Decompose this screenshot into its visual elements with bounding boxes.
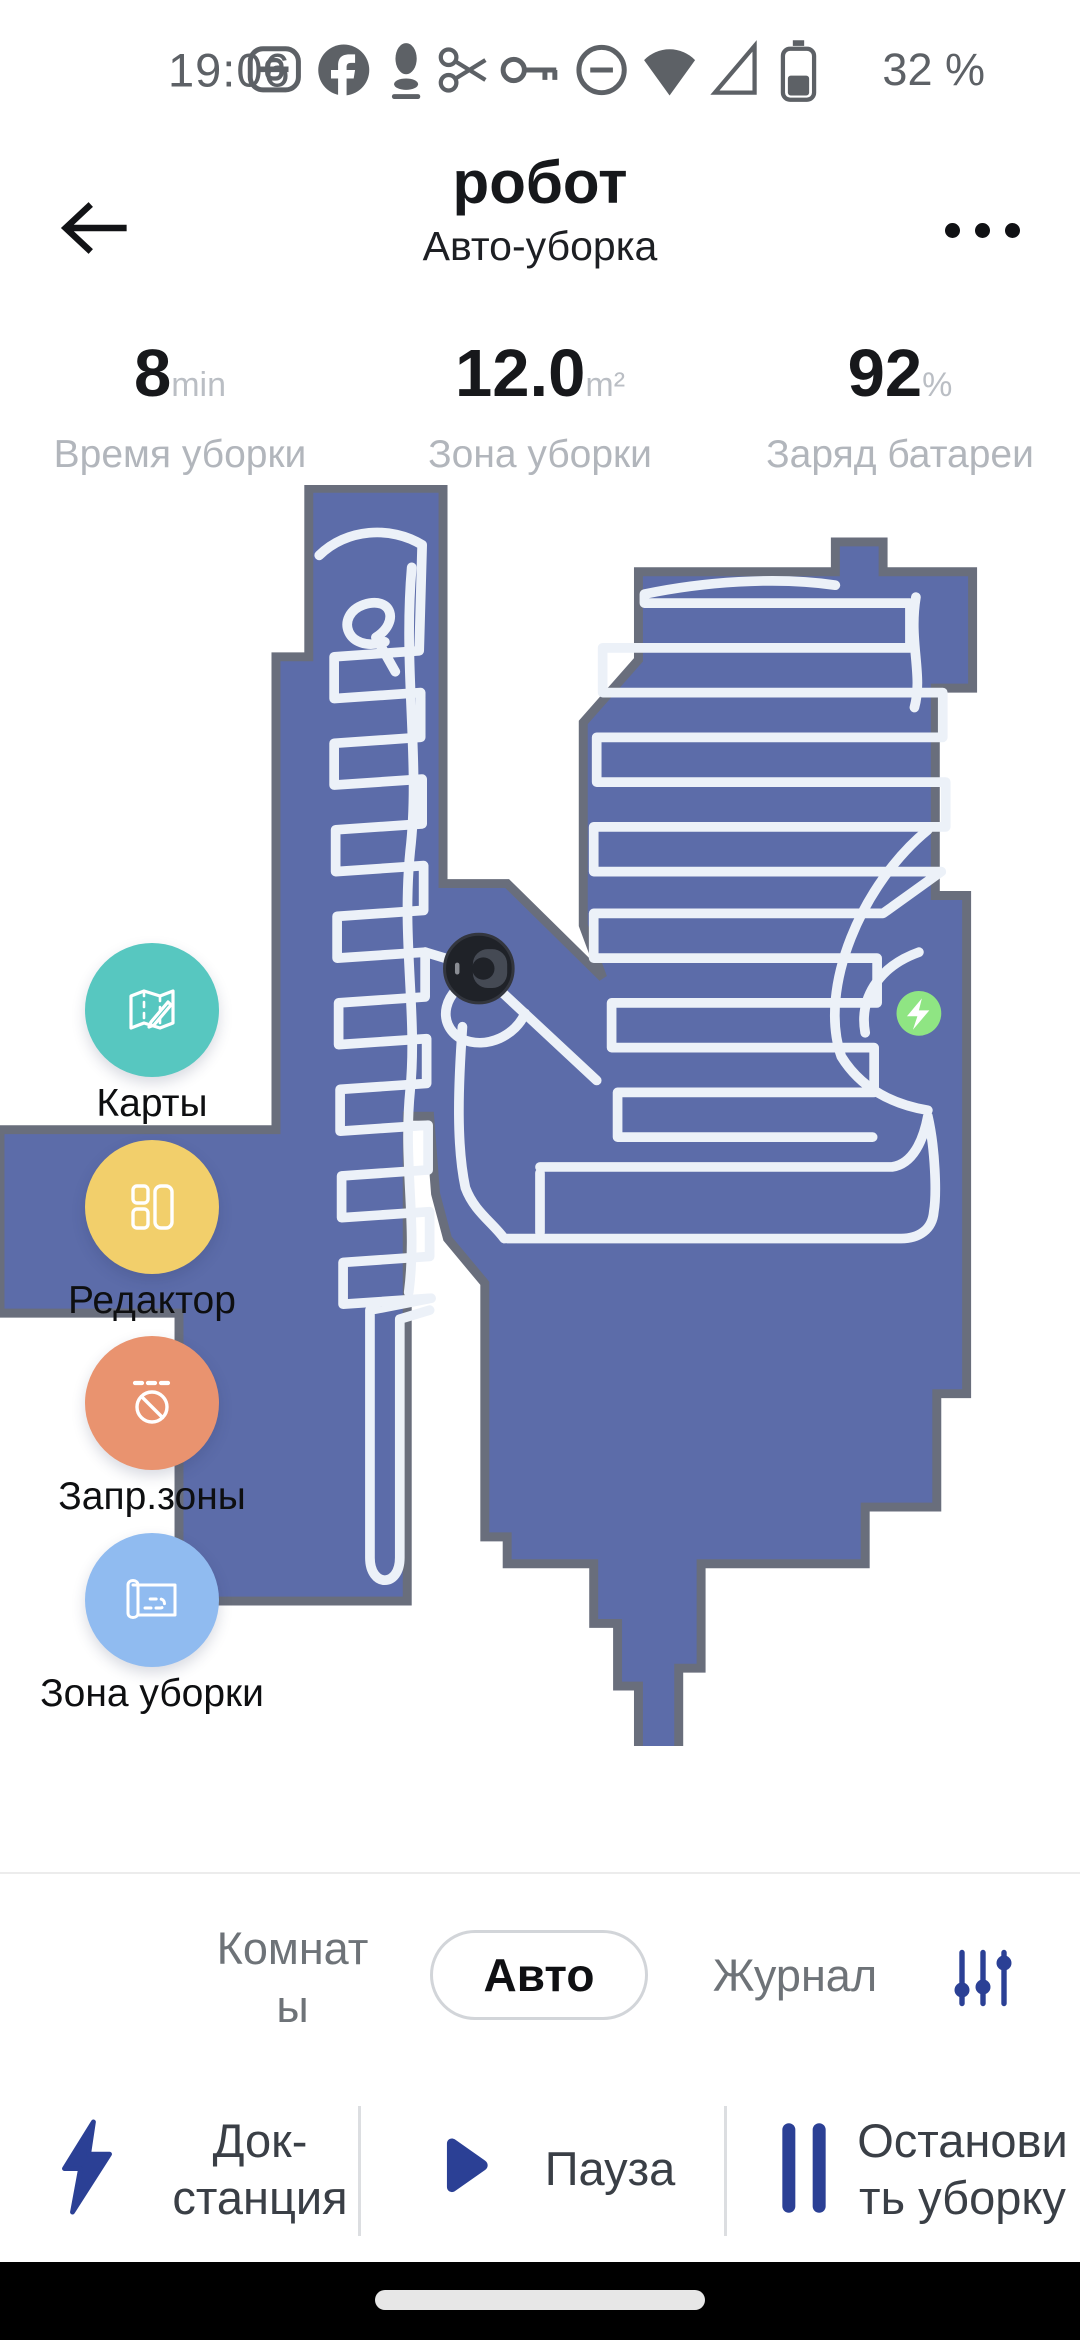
maps-button-label: Карты (0, 1082, 352, 1126)
stat-time: 8min Время уборки (0, 336, 360, 477)
editor-button[interactable] (85, 1140, 219, 1274)
wifi-icon (645, 49, 696, 95)
overflow-menu-button[interactable] (945, 215, 1045, 245)
play-icon (440, 2134, 492, 2200)
stat-time-unit: min (171, 366, 226, 404)
zone-cleaning-button[interactable] (85, 1533, 219, 1667)
no-go-zones-button-label: Запр.зоны (0, 1475, 352, 1519)
pause-label[interactable]: Пауза (515, 2140, 705, 2197)
data-saver-icon (251, 49, 299, 90)
divider (0, 1872, 1080, 1874)
page-subtitle: Авто-уборка (240, 220, 840, 272)
tab-rooms-line1: Комнат (217, 1923, 369, 1974)
stat-time-value: 8 (134, 336, 171, 411)
blueprint-icon (113, 1561, 191, 1639)
status-icons (232, 36, 872, 104)
stat-battery-unit: % (922, 366, 952, 404)
stat-area-value: 12.0 (455, 336, 585, 411)
page-title-block: робот Авто-уборка (240, 150, 840, 272)
gesture-bar[interactable] (375, 2290, 705, 2310)
stop-cleaning-label[interactable]: Останови ть уборку (845, 2112, 1080, 2226)
dot-icon (945, 223, 960, 238)
no-entry-icon (113, 1364, 191, 1442)
tab-journal[interactable]: Журнал (690, 1950, 900, 2002)
no-go-zones-button[interactable] (85, 1336, 219, 1470)
zone-cleaning-button-label: Зона уборки (0, 1672, 352, 1716)
stat-battery: 92% Заряд батареи (720, 336, 1080, 477)
tab-rooms-line2: ы (276, 1981, 308, 2032)
assistant-icon (392, 43, 420, 99)
stat-area-label: Зона уборки (360, 433, 720, 477)
stat-area-unit: m² (585, 366, 625, 404)
dock-station-line1: Док- (213, 2114, 308, 2167)
back-arrow-icon (58, 198, 128, 258)
map-icon (113, 971, 191, 1049)
pause-line1: Пауза (545, 2142, 676, 2195)
stop-cleaning-line2: ть уборку (859, 2171, 1066, 2224)
stat-area: 12.0m² Зона уборки (360, 336, 720, 477)
stop-cleaning-button[interactable] (778, 2118, 830, 2218)
resume-button[interactable] (440, 2134, 492, 2200)
divider (724, 2106, 727, 2236)
stop-cleaning-line1: Останови (857, 2114, 1068, 2167)
filter-settings-button[interactable] (950, 1948, 1016, 2008)
sliders-icon (950, 1948, 1016, 2008)
dot-icon (1005, 223, 1020, 238)
tab-rooms[interactable]: Комнат ы (205, 1920, 380, 2036)
back-button[interactable] (58, 198, 128, 258)
battery-percent-text: 32 % (882, 44, 985, 96)
tab-auto[interactable]: Авто (430, 1930, 648, 2020)
dock-station-button[interactable] (58, 2118, 116, 2216)
stat-battery-value: 92 (848, 336, 923, 411)
tab-auto-label: Авто (484, 1948, 595, 2002)
facebook-icon (319, 45, 370, 96)
robot-marker[interactable] (445, 934, 514, 1003)
pause-icon (778, 2118, 830, 2218)
battery-icon (783, 40, 814, 100)
layout-icon (113, 1168, 191, 1246)
stat-time-label: Время уборки (0, 433, 360, 477)
divider (358, 2106, 361, 2236)
maps-button[interactable] (85, 943, 219, 1077)
dot-icon (975, 223, 990, 238)
dock-station-label[interactable]: Док- станция (150, 2112, 370, 2226)
editor-button-label: Редактор (0, 1279, 352, 1323)
status-bar: 19:06 (0, 30, 1080, 110)
stat-battery-label: Заряд батареи (720, 433, 1080, 477)
scissors-icon (441, 49, 486, 90)
cell-signal-icon (715, 46, 755, 93)
cleaning-stats: 8min Время уборки 12.0m² Зона уборки 92%… (0, 336, 1080, 477)
tab-journal-label: Журнал (713, 1950, 877, 2001)
lightning-icon (58, 2118, 116, 2216)
page-title: робот (240, 150, 840, 216)
do-not-disturb-icon (579, 47, 624, 92)
dock-marker (897, 991, 942, 1036)
dock-station-line2: станция (172, 2171, 347, 2224)
key-icon (504, 59, 557, 80)
